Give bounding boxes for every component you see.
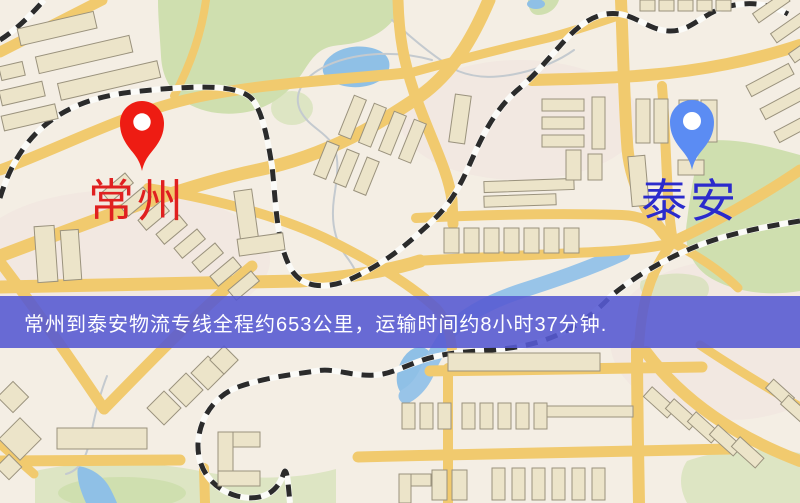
origin-pin-icon[interactable] (114, 95, 170, 175)
route-info-text: 常州到泰安物流专线全程约653公里，运输时间约8小时37分钟. (24, 308, 607, 337)
destination-pin-hole (683, 112, 701, 130)
destination-pin-icon[interactable] (664, 94, 720, 174)
logistics-route-map: 常州 泰安 常州到泰安物流专线全程约653公里，运输时间约8小时37分钟. (0, 0, 800, 503)
origin-pin-hole (133, 113, 150, 130)
destination-pin-shape (670, 100, 714, 170)
destination-city-label: 泰安 (641, 178, 739, 224)
origin-pin-shape (120, 101, 164, 171)
map-canvas (0, 0, 800, 503)
origin-city-label: 常州 (88, 178, 186, 224)
route-info-banner: 常州到泰安物流专线全程约653公里，运输时间约8小时37分钟. (0, 296, 800, 348)
